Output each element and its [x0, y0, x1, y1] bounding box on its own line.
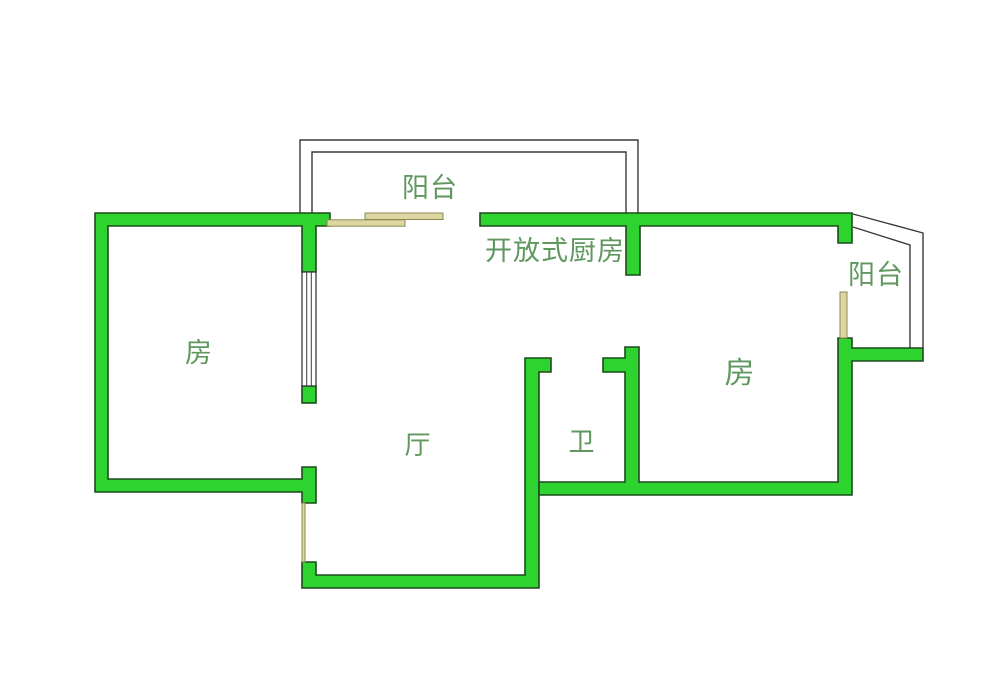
floor-plan-canvas: 阳台 开放式厨房 阳台 房 厅 卫 房 [0, 0, 1000, 676]
sliding-door-panel-upper [365, 213, 443, 220]
label-living-room: 厅 [404, 431, 431, 461]
balcony-top-inner-outline [312, 152, 626, 213]
label-balcony-top: 阳台 [402, 173, 458, 204]
label-balcony-right: 阳台 [848, 260, 904, 291]
window-left-bedroom [302, 272, 316, 386]
label-bathroom: 卫 [568, 428, 595, 458]
window-right-wall [840, 292, 847, 338]
wall-living-room-bathroom-left [302, 358, 551, 588]
wall-window-sill-block [302, 386, 316, 403]
sliding-door-panel-lower [327, 220, 405, 226]
balcony-top-outer-outline [300, 140, 638, 213]
entry-door-leaf [302, 503, 305, 562]
label-open-kitchen: 开放式厨房 [485, 236, 625, 267]
label-bedroom-right: 房 [725, 356, 756, 391]
label-bedroom-left: 房 [185, 338, 213, 369]
floor-plan-page: 阳台 开放式厨房 阳台 房 厅 卫 房 [0, 0, 1000, 676]
